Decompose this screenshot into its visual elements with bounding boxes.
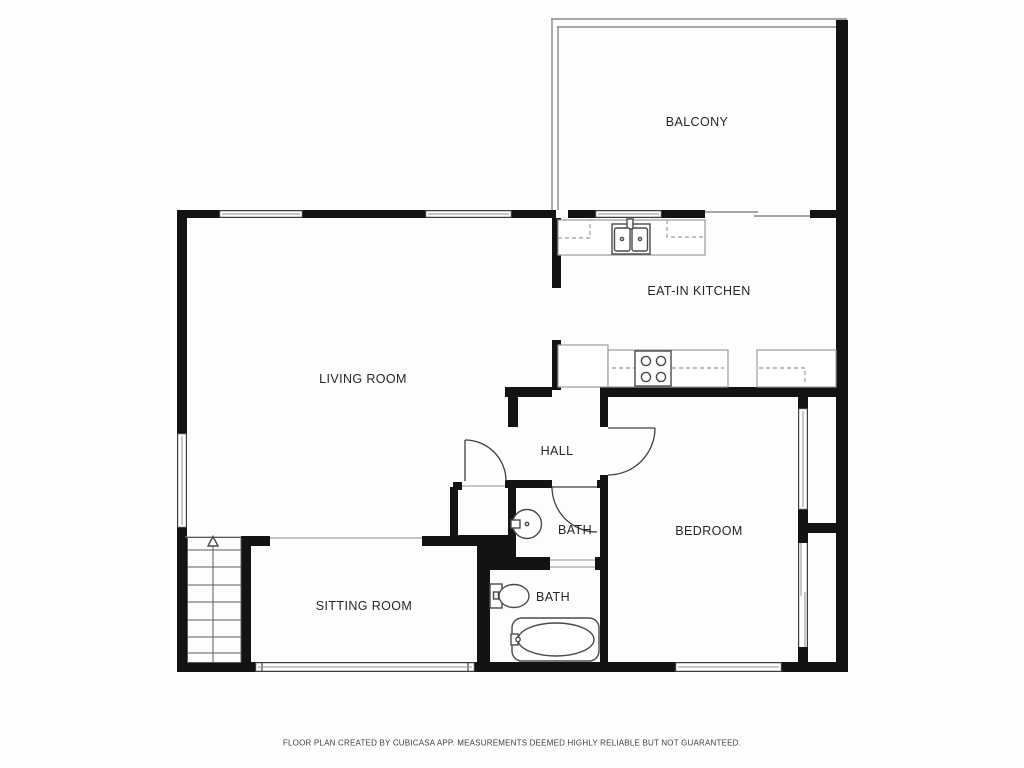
room-label-living-room: LIVING ROOM (319, 372, 407, 386)
room-label-bedroom: BEDROOM (675, 524, 742, 538)
window (595, 210, 662, 218)
walls (177, 20, 848, 672)
stairs-up-arrow-icon (208, 537, 218, 554)
window (798, 408, 808, 510)
room-label-hall: HALL (541, 444, 574, 458)
stove-icon (635, 351, 671, 386)
kitchen-sink-icon (612, 219, 650, 254)
window (177, 433, 187, 528)
window (675, 662, 782, 672)
kitchen-appliance (558, 345, 608, 387)
bedroom-door (608, 428, 655, 475)
footer-disclaimer: FLOOR PLAN CREATED BY CUBICASA APP. MEAS… (283, 739, 741, 748)
floor-plan-canvas: BALCONY EAT-IN KITCHEN LIVING ROOM HALL … (0, 0, 1024, 768)
window (425, 210, 512, 218)
sliding-window (798, 543, 808, 647)
room-label-bath-lower: BATH (536, 590, 570, 604)
room-label-bath-upper: BATH (558, 523, 592, 537)
room-label-eat-in-kitchen: EAT-IN KITCHEN (647, 284, 750, 298)
room-label-balcony: BALCONY (666, 115, 729, 129)
window (219, 210, 303, 218)
kitchen-fixtures (558, 219, 836, 387)
room-label-sitting-room: SITTING ROOM (316, 599, 412, 613)
sliding-balcony-door (705, 212, 810, 216)
closet-door (465, 440, 506, 481)
window (255, 662, 475, 672)
floor-plan-drawing (0, 0, 1024, 768)
bathtub-icon (511, 618, 599, 661)
toilet-icon (490, 584, 529, 608)
staircase (187, 537, 241, 663)
